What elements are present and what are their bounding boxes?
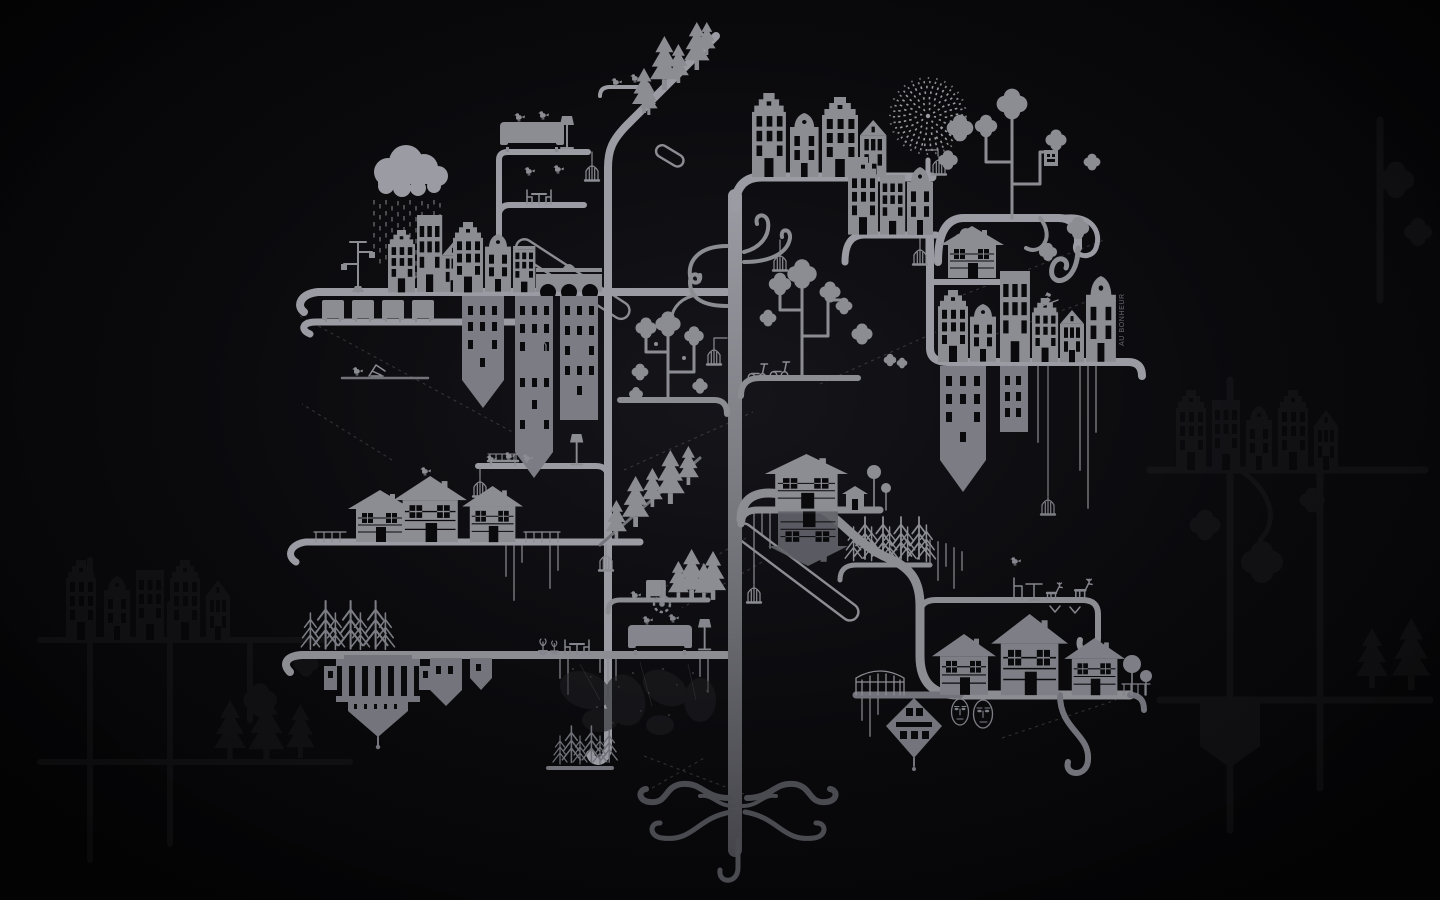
- pine-rows-right: [845, 517, 935, 561]
- birdcage-icon: [913, 247, 927, 265]
- sofa-lounge-top-left: [500, 111, 599, 204]
- hanging-diamond-house: [886, 698, 942, 771]
- chalet-row-left: [314, 467, 613, 570]
- pine-cluster-bottom-left: [301, 601, 394, 649]
- pine-shelf-small: [630, 549, 726, 600]
- grunge-splatter: [554, 662, 716, 735]
- flower-tree-center-left: [629, 311, 708, 401]
- pine-cluster-top: [632, 22, 716, 115]
- bridge-icon: [536, 264, 602, 300]
- canal-houses-top-small: [848, 157, 933, 235]
- small-hanging-blocks: [430, 658, 492, 706]
- ball-trees: [867, 465, 891, 510]
- pergola-icon: [856, 671, 904, 695]
- street-lamp: [341, 242, 375, 292]
- flower-tree-center-right: [760, 259, 908, 378]
- hanging-temple: [324, 655, 432, 749]
- deckchair-ledge: [352, 365, 385, 376]
- birds-top-wire: [611, 74, 641, 86]
- canal-houses-left: [388, 215, 602, 300]
- cloud-icon: [374, 145, 448, 197]
- lounge-on-branch: [538, 582, 711, 655]
- center-house-with-reflection: [747, 454, 891, 603]
- birdcage-icon: [707, 347, 721, 365]
- shed-icon: [842, 486, 868, 510]
- chalet-row-right: [932, 614, 1152, 695]
- city-tree-artwork: AU BONHEUR: [0, 0, 1440, 900]
- right-meadow-figures: [1010, 557, 1092, 613]
- wallpaper-canvas: AU BONHEUR: [0, 0, 1440, 900]
- two-faces: [952, 699, 993, 728]
- pine-cluster-center: [606, 446, 699, 539]
- shop-sign-vertical: AU BONHEUR: [1119, 293, 1126, 346]
